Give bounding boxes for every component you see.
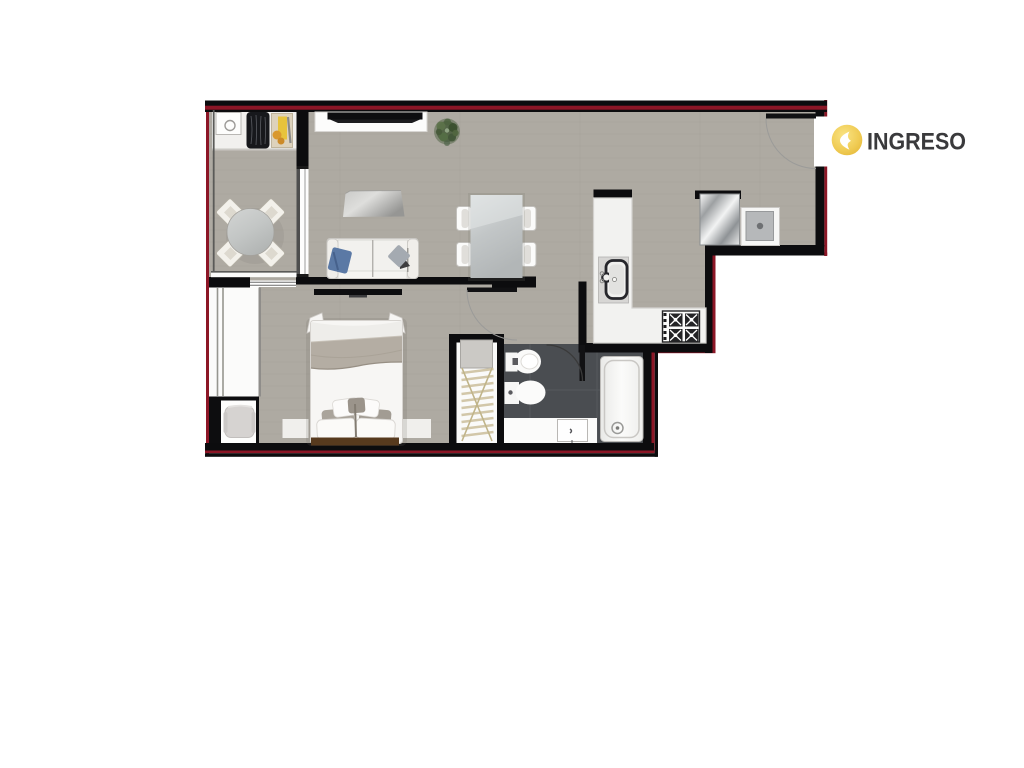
svg-text:INGRESO: INGRESO bbox=[867, 129, 966, 156]
